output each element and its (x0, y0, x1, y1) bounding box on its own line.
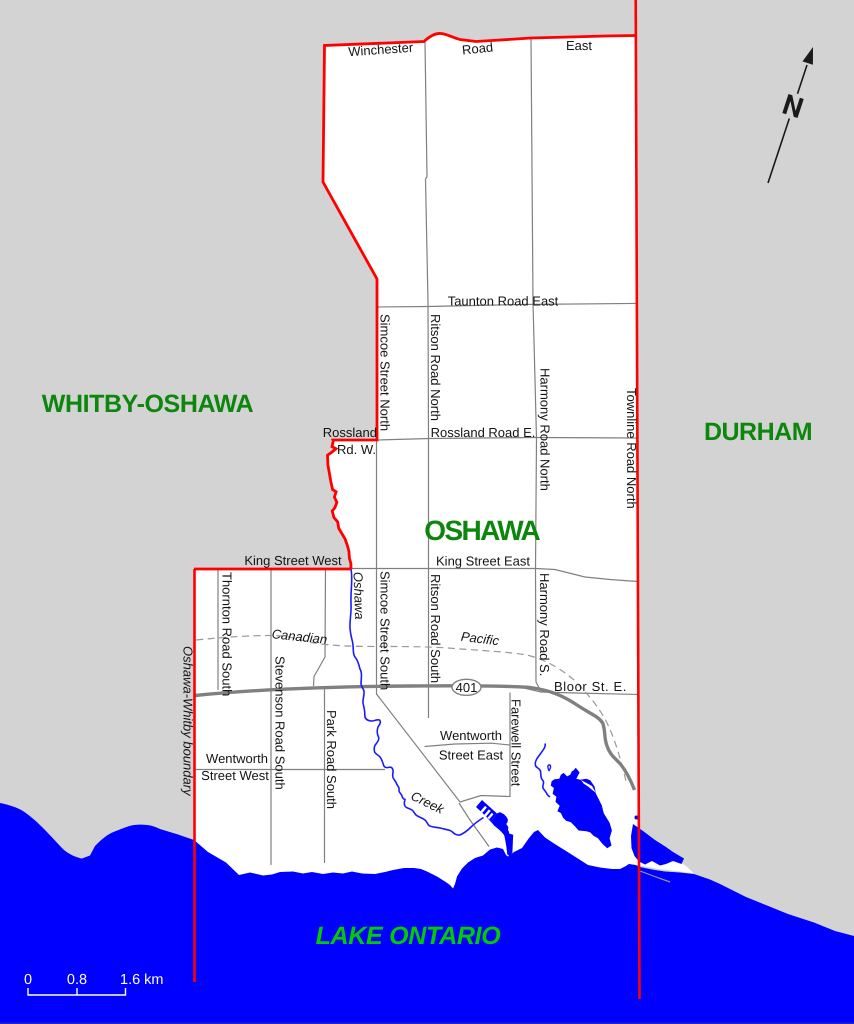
svg-text:401: 401 (456, 680, 478, 695)
svg-text:Street West: Street West (201, 768, 269, 783)
svg-text:0.8: 0.8 (67, 972, 87, 988)
svg-text:Wentworth: Wentworth (440, 728, 502, 743)
svg-text:King Street East: King Street East (436, 554, 530, 569)
svg-text:King Street West: King Street West (244, 553, 342, 568)
svg-text:Rossland: Rossland (323, 425, 377, 440)
svg-text:Thornton Road South: Thornton Road South (220, 572, 235, 696)
svg-text:Harmony Road North: Harmony Road North (538, 368, 553, 491)
svg-text:Simcoe Street North: Simcoe Street North (378, 314, 393, 431)
svg-text:Street East: Street East (439, 748, 504, 763)
svg-text:Rd. W.: Rd. W. (337, 442, 376, 457)
svg-text:Farewell Street: Farewell Street (509, 699, 524, 787)
svg-text:LAKE ONTARIO: LAKE ONTARIO (316, 922, 502, 950)
svg-text:Oshawa-Whitby boundary: Oshawa-Whitby boundary (181, 646, 196, 797)
svg-text:Simcoe Street South: Simcoe Street South (378, 571, 393, 690)
svg-text:Wentworth: Wentworth (206, 751, 268, 766)
svg-text:Townline Road North: Townline Road North (624, 388, 639, 509)
svg-text:Ritson Road South: Ritson Road South (428, 574, 443, 683)
svg-text:Rossland Road E.: Rossland Road E. (431, 425, 536, 440)
svg-text:DURHAM: DURHAM (704, 418, 812, 446)
svg-text:Park Road South: Park Road South (324, 710, 339, 809)
svg-text:WHITBY-OSHAWA: WHITBY-OSHAWA (42, 390, 254, 418)
svg-text:1.6 km: 1.6 km (120, 972, 164, 988)
svg-text:Bloor St. E.: Bloor St. E. (554, 679, 627, 694)
svg-text:Ritson Road North: Ritson Road North (428, 314, 443, 421)
svg-text:Oshawa: Oshawa (351, 572, 368, 620)
svg-text:0: 0 (24, 972, 32, 988)
svg-text:Stevenson Road South: Stevenson Road South (273, 656, 288, 790)
svg-text:OSHAWA: OSHAWA (424, 515, 540, 546)
svg-text:Harmony Road S.: Harmony Road S. (537, 573, 552, 676)
svg-text:Taunton Road East: Taunton Road East (448, 294, 559, 309)
svg-text:East: East (566, 38, 592, 53)
